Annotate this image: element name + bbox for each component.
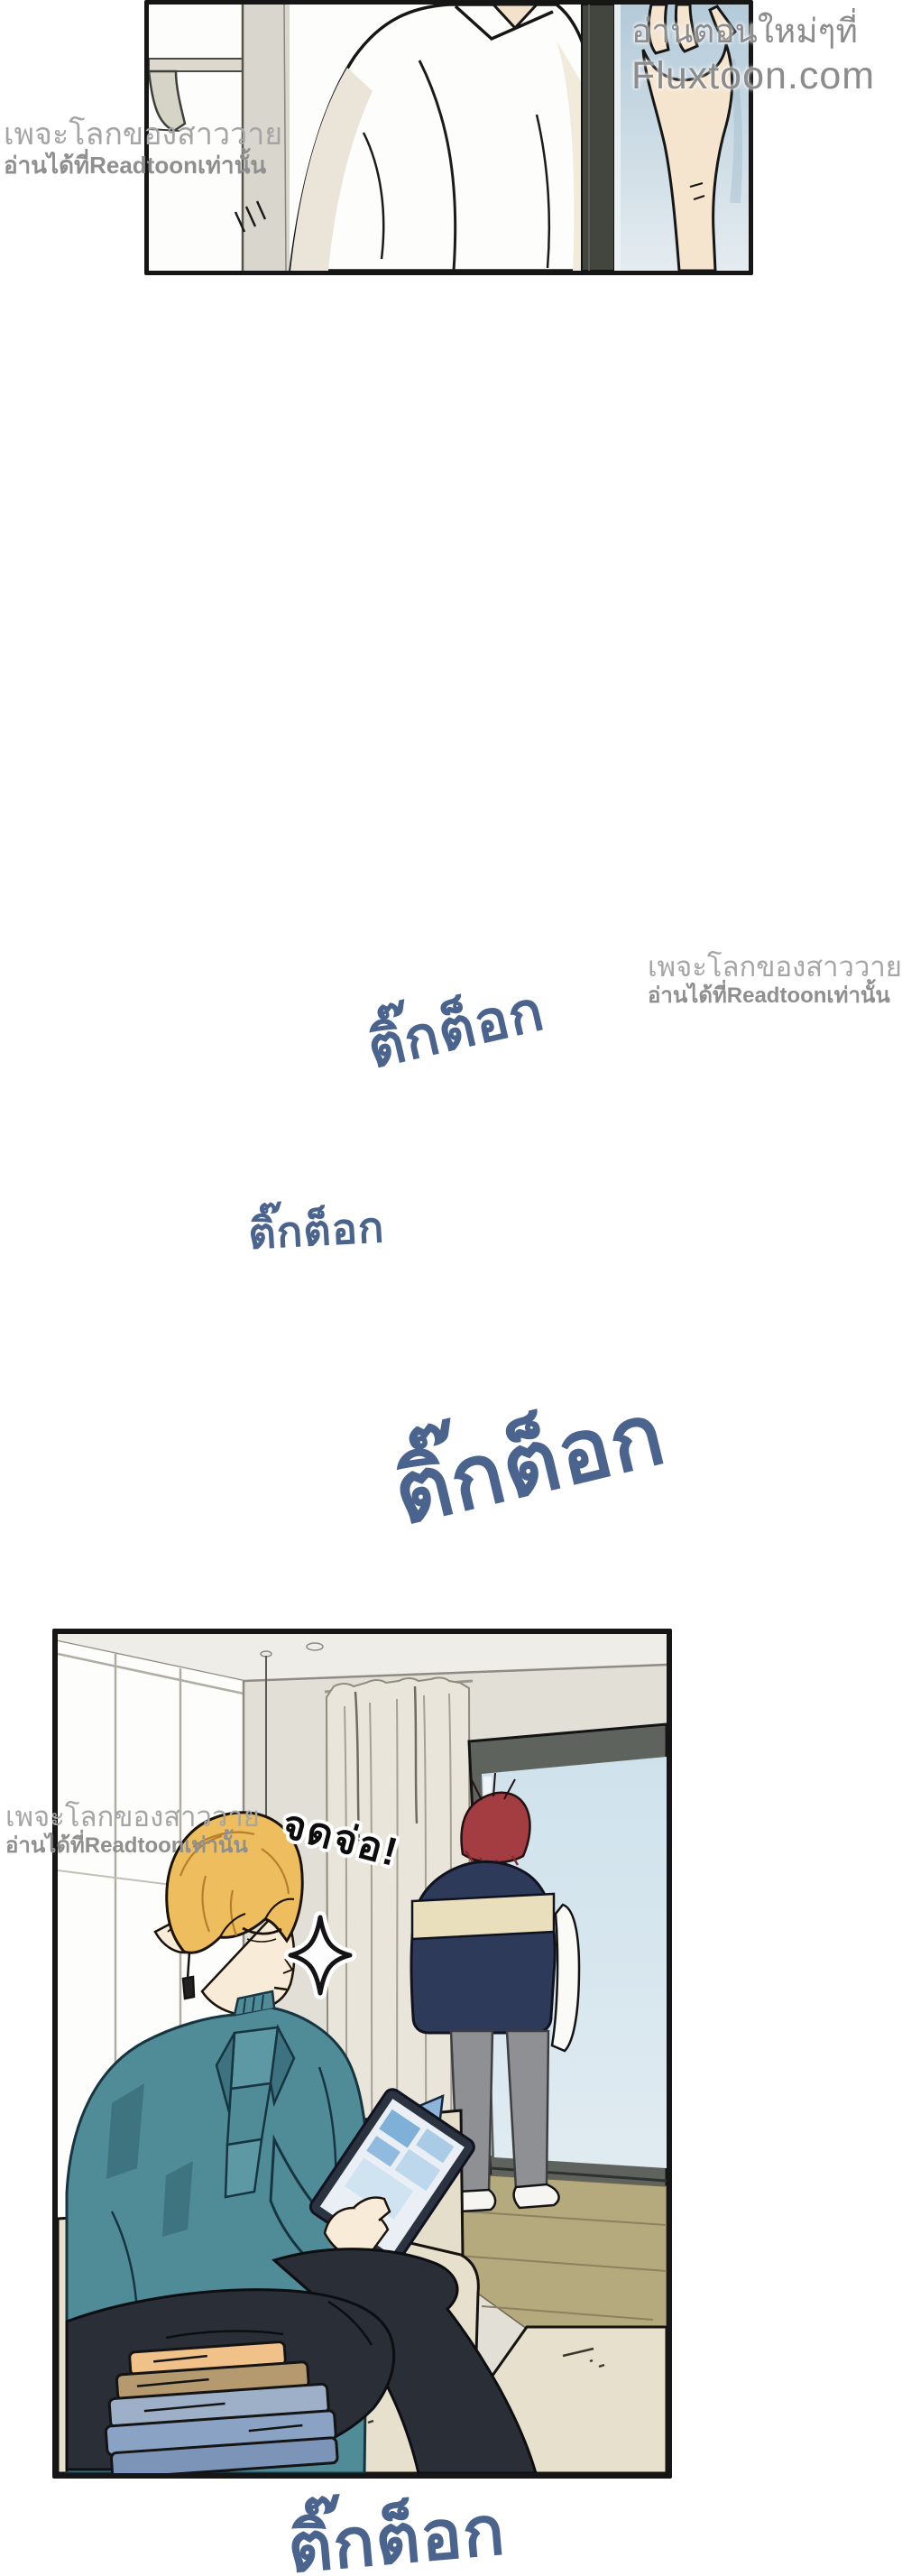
sfx-ticktock-large: ติ๊กต็อก [386,1390,673,1538]
ceiling-light [307,1643,323,1650]
panel-top [144,0,753,275]
jacket-band [412,1894,554,1939]
sfx-ticktock-medium: ติ๊กต็อก [247,1205,385,1255]
cabinet-edge [243,5,290,271]
glass-and-arm [614,5,749,271]
watermark-line2: อ่านได้ที่Readtoonเท่านั้น [648,983,902,1009]
watermark-line1: เพจะโลกของสาววาย [648,951,902,983]
sfx-ticktock-cutoff: ติ๊กต็อก [285,2497,508,2576]
webtoon-page: อ่านตอนใหม่ๆที่ Fluxtoon.com เพจะโลกของส… [0,0,902,2576]
panel-bottom [52,1629,672,2479]
top-panel-illustration [149,5,749,271]
sfx-ticktock-small: ติ๊กต็อก [363,983,549,1077]
watermark-readtoon-middle: เพจะโลกของสาววาย อ่านได้ที่Readtoonเท่าน… [648,951,902,1008]
bottom-panel-illustration [58,1634,667,2473]
door-frame [582,5,614,271]
